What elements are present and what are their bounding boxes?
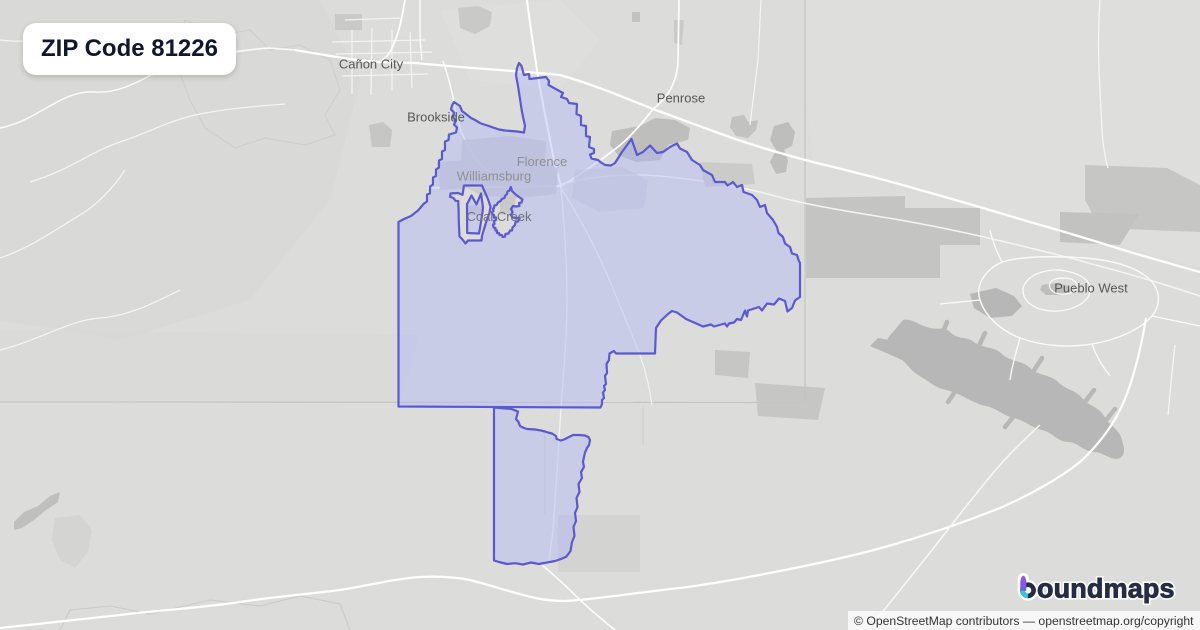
svg-text:Williamsburg: Williamsburg	[457, 169, 531, 184]
svg-text:oundmaps: oundmaps	[1037, 574, 1175, 604]
svg-text:Coal Creek: Coal Creek	[466, 209, 532, 224]
svg-text:Brookside: Brookside	[407, 110, 465, 125]
svg-text:Cañon City: Cañon City	[339, 57, 404, 72]
svg-text:Florence: Florence	[517, 154, 568, 169]
svg-text:Pueblo West: Pueblo West	[1054, 281, 1128, 296]
svg-text:Penrose: Penrose	[657, 91, 705, 106]
